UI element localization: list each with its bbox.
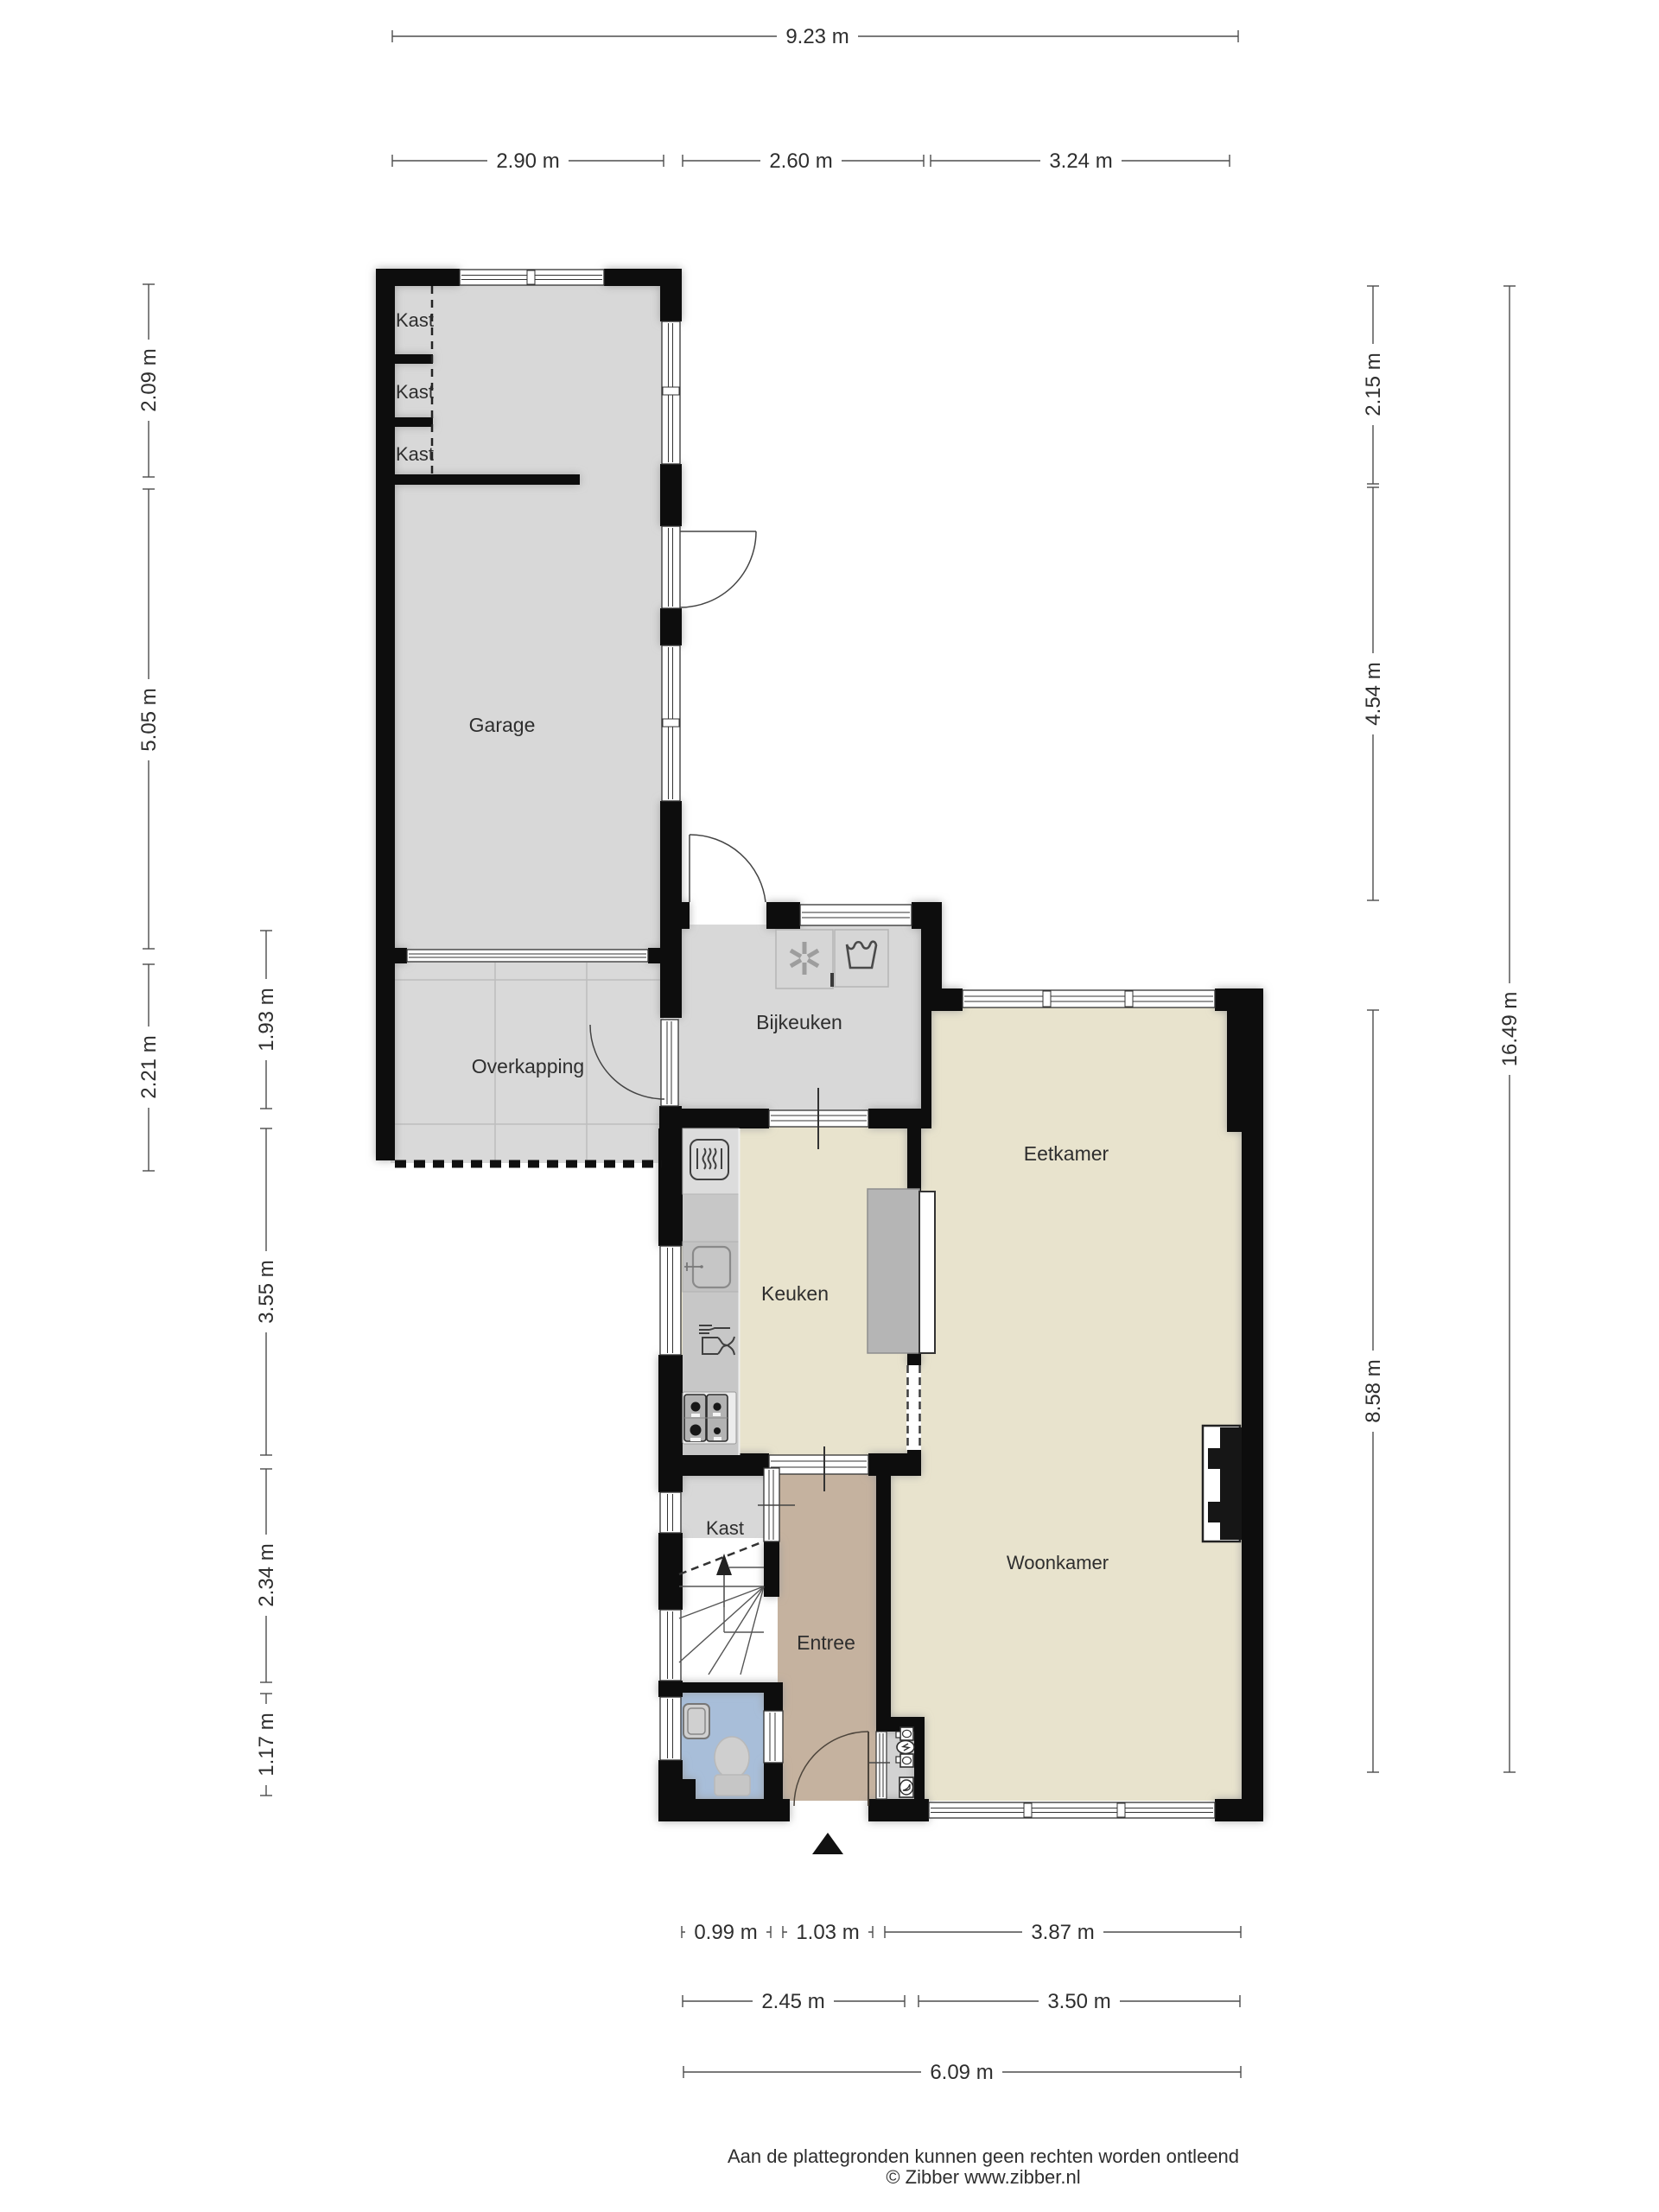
svg-text:0.99 m: 0.99 m <box>694 1921 757 1944</box>
svg-text:2.60 m: 2.60 m <box>769 149 832 173</box>
svg-text:2.21 m: 2.21 m <box>137 1035 161 1098</box>
svg-text:4.54 m: 4.54 m <box>1362 662 1385 725</box>
svg-text:Bijkeuken: Bijkeuken <box>756 1011 842 1033</box>
svg-text:1.03 m: 1.03 m <box>796 1921 859 1944</box>
svg-text:Overkapping: Overkapping <box>472 1055 584 1077</box>
svg-text:Aan de plattegronden kunnen ge: Aan de plattegronden kunnen geen rechten… <box>728 2145 1239 2167</box>
svg-text:2.15 m: 2.15 m <box>1362 353 1385 416</box>
svg-text:3.55 m: 3.55 m <box>255 1260 278 1323</box>
svg-text:Kast: Kast <box>396 381 434 403</box>
svg-text:2.34 m: 2.34 m <box>255 1543 278 1606</box>
svg-text:Woonkamer: Woonkamer <box>1007 1552 1109 1573</box>
svg-text:2.45 m: 2.45 m <box>761 1990 824 2013</box>
svg-text:6.09 m: 6.09 m <box>930 2061 993 2084</box>
svg-text:9.23 m: 9.23 m <box>785 25 849 48</box>
svg-text:Entree: Entree <box>797 1631 855 1654</box>
svg-text:8.58 m: 8.58 m <box>1362 1359 1385 1422</box>
svg-text:Garage: Garage <box>469 714 536 736</box>
svg-text:Eetkamer: Eetkamer <box>1024 1142 1109 1165</box>
svg-text:3.50 m: 3.50 m <box>1047 1990 1110 2013</box>
svg-text:© Zibber www.zibber.nl: © Zibber www.zibber.nl <box>886 2166 1080 2188</box>
svg-text:16.49 m: 16.49 m <box>1498 992 1522 1067</box>
svg-text:3.87 m: 3.87 m <box>1031 1921 1094 1944</box>
svg-text:Kast: Kast <box>396 443 434 465</box>
svg-text:2.90 m: 2.90 m <box>496 149 559 173</box>
svg-text:1.93 m: 1.93 m <box>255 988 278 1051</box>
svg-text:3.24 m: 3.24 m <box>1049 149 1112 173</box>
svg-text:5.05 m: 5.05 m <box>137 688 161 751</box>
svg-text:Keuken: Keuken <box>761 1282 829 1305</box>
svg-text:Kast: Kast <box>706 1517 744 1539</box>
svg-text:1.17 m: 1.17 m <box>255 1713 278 1776</box>
svg-text:2.09 m: 2.09 m <box>137 348 161 411</box>
svg-text:Kast: Kast <box>396 309 434 331</box>
